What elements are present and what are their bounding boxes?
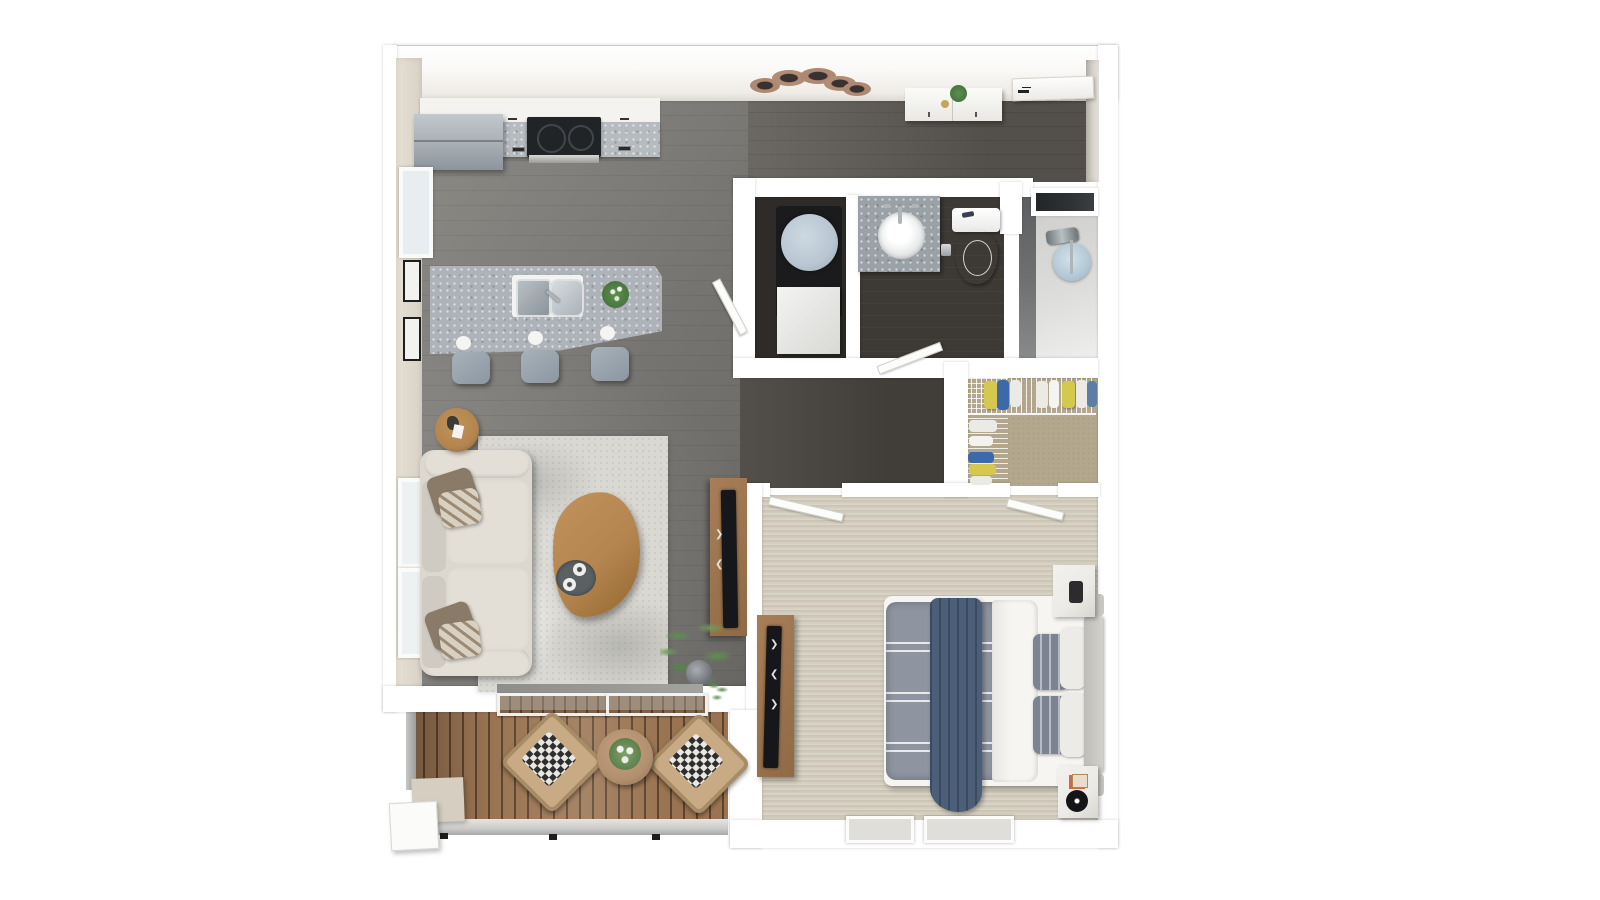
- kitchen-window: [399, 167, 433, 258]
- sofa-armrest-top: [424, 450, 530, 478]
- bathroom-bottom-wall: [733, 358, 1098, 378]
- throw-pillow-pattern-2: [438, 619, 483, 660]
- vanity-faucet: [898, 206, 902, 224]
- nightstand-bottom-decor: [1072, 774, 1088, 788]
- bedroom-floor-window-2: [924, 816, 1014, 843]
- bar-stool-1: [452, 352, 490, 384]
- hanging-clothes-blue-2: [1087, 381, 1097, 407]
- wall-art-black-2: [403, 317, 421, 361]
- side-clothes-white-2: [969, 436, 993, 446]
- balcony-railing: [412, 819, 728, 835]
- living-tv-stand-legs: ❯❮: [715, 530, 723, 570]
- railing-foot-middle: [549, 834, 557, 840]
- left-exterior-wall: [383, 45, 397, 712]
- balcony-corner-plant: [708, 678, 728, 704]
- refrigerator: [414, 114, 503, 170]
- side-clothes-white-1: [969, 420, 997, 432]
- ceiling-fan-blade-5: [843, 82, 871, 96]
- cooktop-burner-left: [537, 124, 566, 153]
- laundry-left-wall: [733, 178, 755, 376]
- wall-art-black-1: [403, 260, 421, 302]
- toilet-tank: [952, 208, 1000, 232]
- railing-foot-left: [440, 833, 448, 839]
- shower-niche-dark: [1036, 193, 1094, 211]
- tray-cup-2: [563, 578, 576, 591]
- oven-drawer-front: [529, 155, 599, 163]
- railing-foot-right: [652, 834, 660, 840]
- hanging-clothes-blue-1: [997, 380, 1009, 410]
- balcony-step-box: [389, 801, 439, 851]
- top-exterior-wall: [393, 45, 1118, 101]
- sliding-door-glass-sheen: [497, 693, 703, 710]
- closet-shelf-edge: [966, 413, 1096, 415]
- bedroom-top-wall-seg2: [842, 483, 1010, 497]
- side-clothes-white-5: [970, 476, 992, 485]
- hanging-clothes-white-4: [1076, 380, 1087, 408]
- tray-cup-1: [573, 563, 586, 576]
- floor-plan-canvas: ❯❮❯ ❯❮: [0, 0, 1600, 900]
- entry-door-handle: [1018, 90, 1029, 93]
- entry-console-handle-1: [928, 112, 930, 117]
- bar-stool-3: [591, 347, 629, 381]
- island-place-setting-2: [528, 331, 543, 345]
- entry-console-decor: [941, 100, 949, 108]
- hallway-floor: [740, 372, 950, 488]
- shower-arm: [1070, 240, 1073, 274]
- entry-console-handle-2: [975, 112, 977, 117]
- hanging-clothes-white-3: [1049, 380, 1059, 408]
- side-clothes-blue-3: [968, 452, 994, 463]
- island-place-setting-3: [600, 326, 615, 340]
- nightstand-bottom-speaker: [1066, 790, 1088, 812]
- island-plant: [602, 281, 629, 308]
- bed-blue-throw: [930, 598, 982, 812]
- vanity-handle-left: [884, 204, 890, 208]
- bed-sheet-fold: [992, 600, 1038, 782]
- hanging-clothes-yellow-1: [984, 381, 997, 409]
- bed-headboard: [1084, 616, 1103, 774]
- closet-left-wall: [944, 362, 968, 497]
- bed-pillow-white-2: [1060, 693, 1086, 757]
- cabinet-handle-3: [620, 118, 629, 120]
- drawer-handle-1: [512, 147, 525, 152]
- nightstand-top-lamp: [1069, 581, 1083, 603]
- drawer-handle-2: [618, 146, 631, 151]
- bedroom-tv-stand-legs: ❯❮❯: [770, 640, 778, 710]
- toilet-seat-line: [963, 240, 992, 276]
- bedroom-top-wall-seg3: [1058, 483, 1100, 497]
- entry-console-plant: [950, 85, 967, 102]
- island-place-setting-1: [456, 336, 471, 350]
- laundry-hamper: [777, 287, 840, 354]
- cabinet-handle-1: [508, 118, 517, 120]
- cooktop-burner-right: [568, 125, 594, 151]
- vanity-handle-right: [912, 204, 918, 208]
- hanging-clothes-yellow-2: [1062, 381, 1075, 408]
- throw-pillow-pattern-1: [437, 487, 483, 529]
- toilet-paper-holder: [941, 244, 951, 256]
- island-sink-bowl-left: [516, 279, 551, 317]
- hanging-clothes-white-1: [1010, 380, 1021, 407]
- bed-pillow-white-1: [1060, 627, 1086, 689]
- shower-stub-wall: [1000, 182, 1022, 234]
- bedroom-floor-window-1: [846, 816, 914, 843]
- bathroom-top-wall: [733, 178, 1033, 197]
- entry-door: [1012, 76, 1095, 102]
- washer-top: [781, 214, 838, 271]
- bar-stool-2: [521, 350, 559, 383]
- hanging-clothes-white-2: [1036, 381, 1048, 408]
- refrigerator-door-seam: [414, 140, 503, 142]
- balcony-table-plant: [609, 738, 641, 770]
- living-tv: [721, 490, 738, 628]
- side-clothes-yellow-3: [969, 464, 996, 475]
